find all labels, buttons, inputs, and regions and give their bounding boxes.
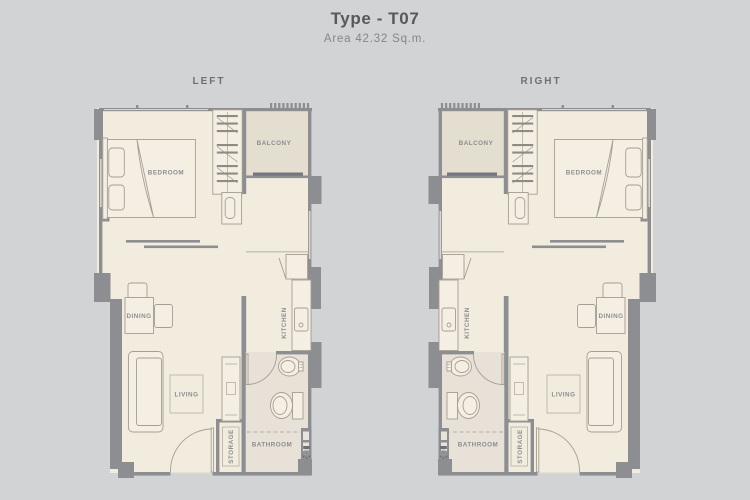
bedroom-label: BEDROOM — [148, 170, 184, 177]
page-title: Type - T07 — [0, 9, 750, 29]
bedroom-label: BEDROOM — [566, 170, 602, 177]
dining-label: DINING — [126, 313, 151, 320]
dining-label: DINING — [598, 313, 623, 320]
sheet-header: Type - T07 Area 42.32 Sq.m. — [0, 9, 750, 45]
floorplan-right: BALCONY BEDROOM DINING LIVING KITCHEN ST… — [422, 99, 660, 484]
storage-label: STORAGE — [517, 429, 524, 464]
storage-label: STORAGE — [228, 429, 235, 464]
bathroom-label: BATHROOM — [252, 442, 293, 449]
page-subtitle: Area 42.32 Sq.m. — [0, 33, 750, 45]
balcony-label: BALCONY — [257, 140, 292, 147]
bathroom-label: BATHROOM — [458, 442, 499, 449]
kitchen-label: KITCHEN — [281, 307, 288, 339]
plan-graphics-right — [429, 103, 661, 484]
kitchen-label: KITCHEN — [464, 307, 471, 339]
plan-graphics-left — [90, 103, 322, 484]
right-plan-label: RIGHT — [422, 76, 660, 87]
living-label: LIVING — [552, 392, 576, 399]
balcony-label: BALCONY — [459, 140, 494, 147]
living-label: LIVING — [175, 392, 199, 399]
floorplan-left: BALCONY BEDROOM DINING LIVING KITCHEN ST… — [90, 99, 328, 484]
left-plan-label: LEFT — [90, 76, 328, 87]
